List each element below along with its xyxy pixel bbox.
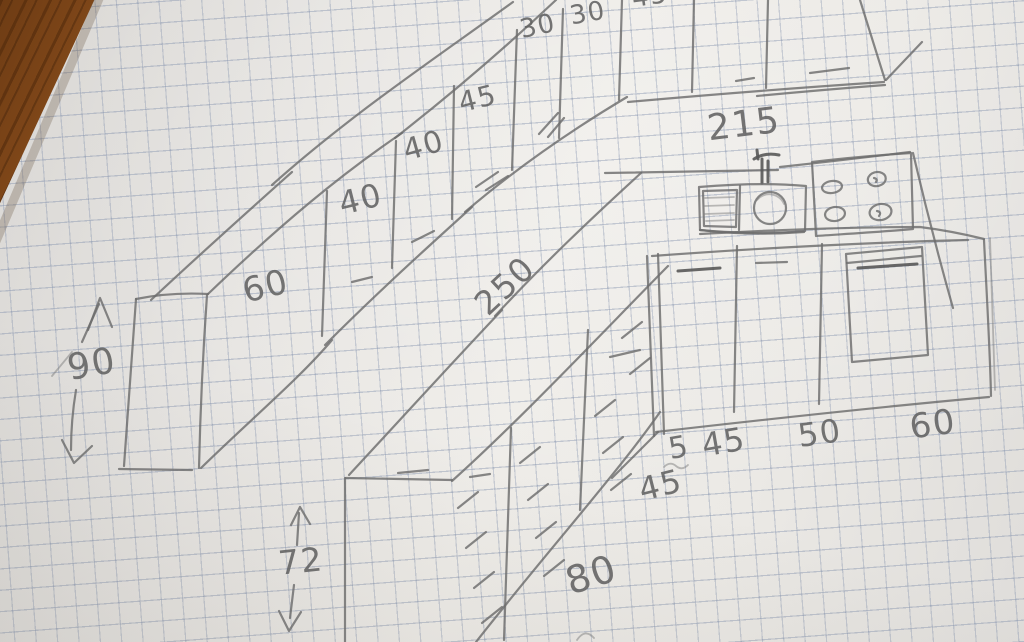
pencil-drawing: 60 40 40 45 30 30 45 215 250 90 72 80 45…: [0, 0, 1024, 642]
handle-dash: [610, 350, 640, 357]
handle-dash: [470, 474, 490, 477]
dim-wall-cabinet-2: 40: [335, 175, 387, 222]
dim-counter-run-total: 250: [467, 248, 543, 323]
handle-dash: [678, 268, 720, 271]
sink-drawing: [699, 184, 806, 233]
handle-dash: [352, 277, 372, 282]
handle-dash: [810, 68, 849, 73]
burner: [868, 172, 886, 186]
handle-dash: [736, 78, 754, 81]
dim-wall-cabinet-7: 45: [630, 0, 670, 14]
dim-wall-cabinet-height: 90: [64, 340, 119, 389]
countertop: [605, 152, 984, 308]
dim-base-section-1: 5: [666, 429, 692, 467]
handle-dash: [756, 262, 787, 263]
handle-dash: [412, 231, 434, 242]
handle-dash: [858, 264, 917, 268]
burner: [821, 180, 842, 195]
dim-wall-cabinet-6: 30: [568, 0, 609, 31]
dim-base-section-4: 60: [907, 401, 958, 447]
dim-base-depth: 45: [635, 461, 687, 508]
wall-cabinets-front-view: [628, 0, 922, 102]
paper-edge-shadow: [0, 0, 101, 246]
wall-cabinet-run: [119, 0, 627, 470]
hatch-marks: [458, 322, 650, 623]
dim-wall-run-total: 215: [705, 100, 783, 150]
sink-basin: [754, 192, 786, 224]
dim-wall-cabinet-5: 30: [517, 8, 559, 45]
hob-drawing: [812, 153, 913, 236]
burner: [824, 206, 846, 223]
handle-dash: [398, 470, 428, 473]
sketch-photo: 60 40 40 45 30 30 45 215 250 90 72 80 45…: [0, 0, 1024, 642]
burner: [870, 204, 892, 220]
dim-base-run-width: 80: [560, 546, 622, 604]
dim-wall-cabinet-1: 60: [238, 262, 293, 312]
handle-dash: [539, 113, 558, 134]
faucet-drawing: [754, 150, 779, 183]
dim-base-cabinet-height: 72: [276, 539, 325, 582]
dim-base-section-3: 50: [795, 411, 844, 455]
dim-base-section-2: 45: [699, 420, 749, 465]
